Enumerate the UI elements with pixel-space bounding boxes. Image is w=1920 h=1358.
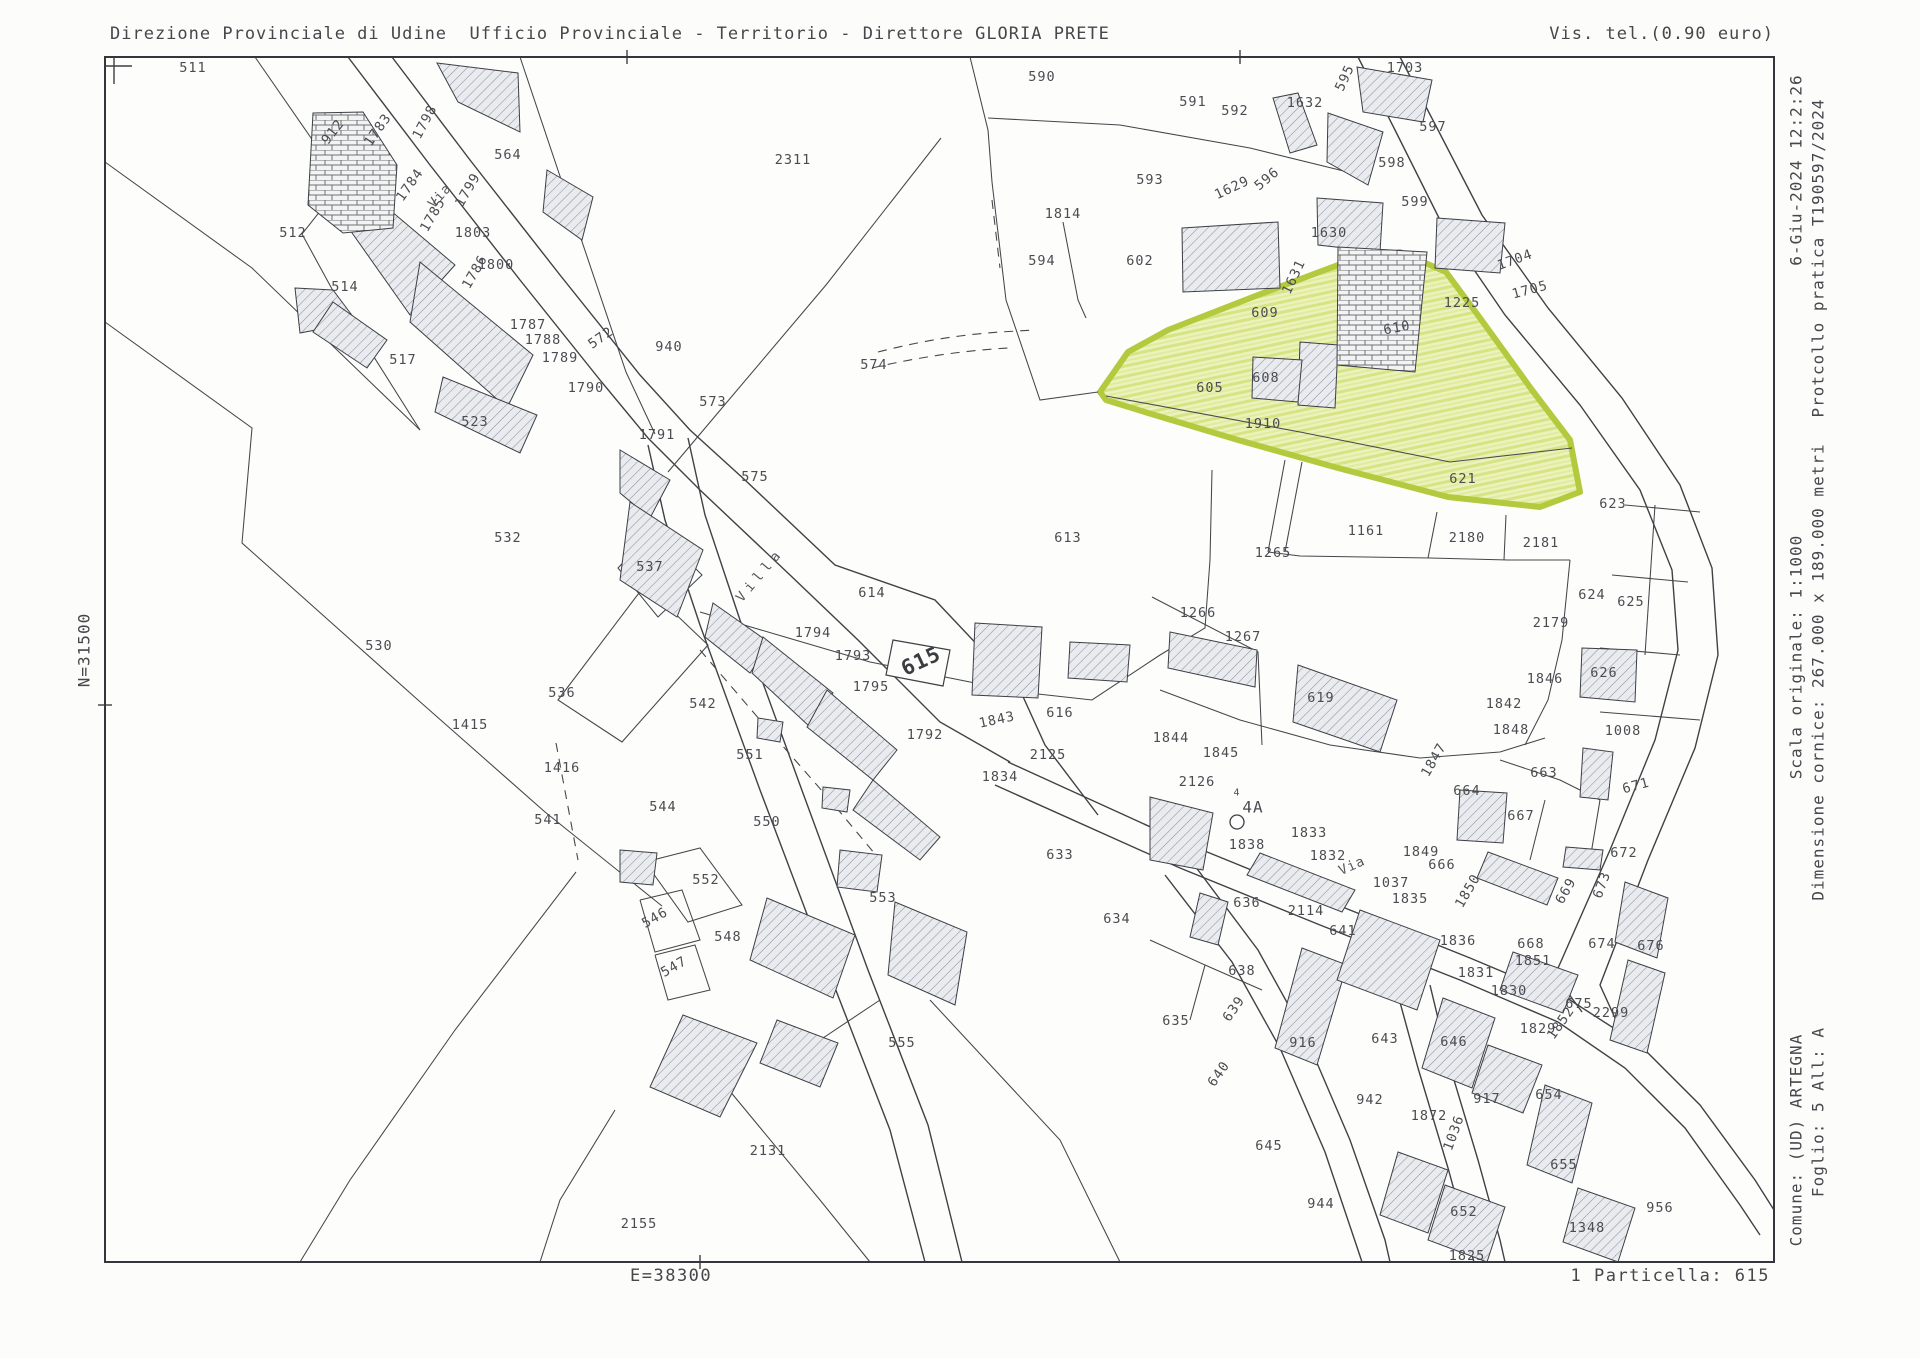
cadastral-map-page: Direzione Provinciale di Udine Ufficio P… [0, 0, 1920, 1358]
cadastral-map-canvas[interactable] [0, 0, 1920, 1358]
